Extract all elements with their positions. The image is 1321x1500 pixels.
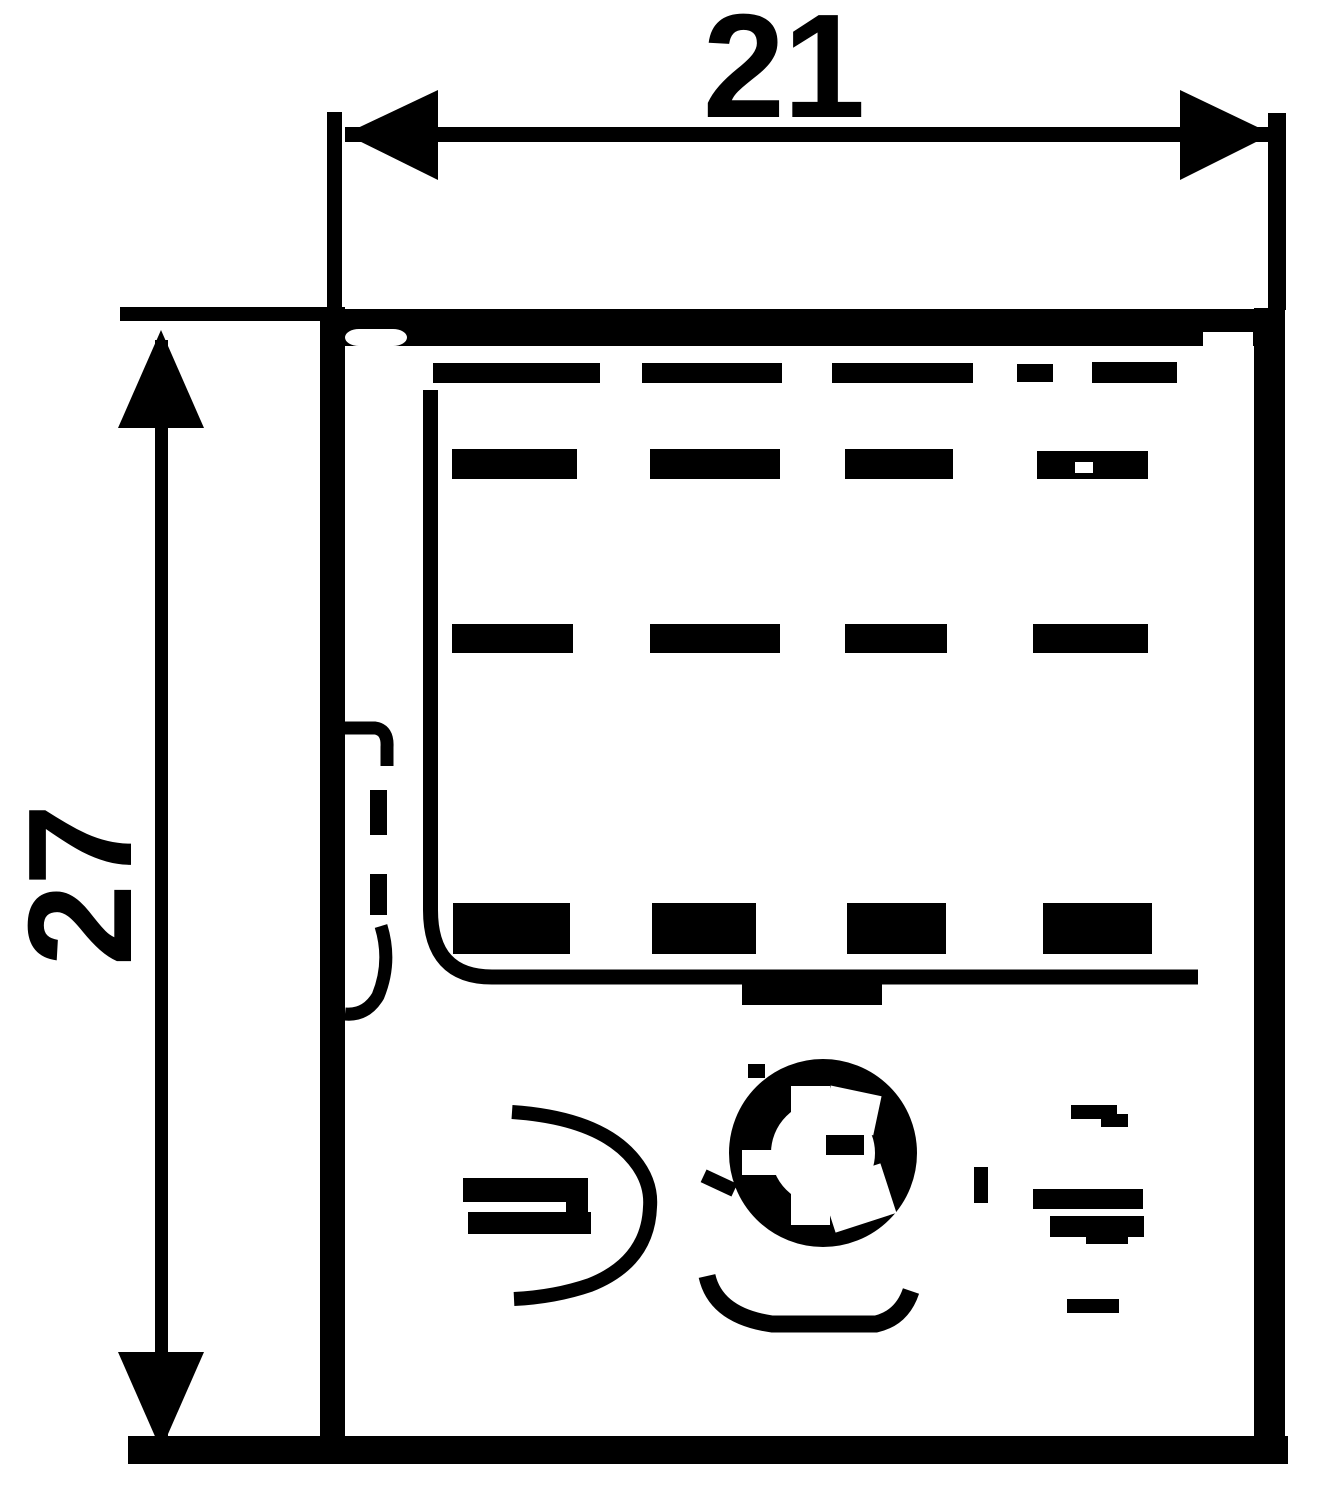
tab-dash [370, 874, 387, 915]
height-extension-line-top [120, 307, 345, 321]
dimension-width: 21 [327, 0, 1286, 312]
tab-dash [370, 790, 387, 835]
dash [845, 624, 947, 653]
housing-top-edge [320, 309, 1285, 346]
drawing-canvas: 21 27 [0, 0, 1321, 1500]
dash [650, 624, 780, 653]
tab-hook [345, 728, 387, 766]
dash [452, 624, 573, 653]
thick-dash [847, 903, 946, 954]
dash [845, 449, 953, 479]
cam-screw-detail [701, 1064, 988, 1324]
width-dimension-label: 21 [703, 0, 864, 149]
hidden-hole-dashes [1033, 1105, 1144, 1313]
height-dimension-label: 27 [0, 806, 163, 967]
tab-curve [345, 926, 386, 1014]
arrowhead-left-icon [345, 90, 438, 180]
dash [452, 449, 577, 479]
housing-left-edge [320, 308, 345, 1463]
cam-bottom-arc-hole [856, 1302, 873, 1315]
dash [650, 449, 780, 479]
hidden-edge-dashes [433, 362, 1177, 653]
top-edge-right-notch [1203, 332, 1253, 346]
width-extension-line-right [1268, 113, 1286, 310]
cam-slot-detail [463, 1112, 650, 1299]
dash [1033, 1189, 1143, 1209]
top-edge-left-notch [345, 329, 407, 346]
thick-dash [1043, 903, 1152, 954]
arrowhead-up-icon [118, 330, 204, 428]
dash [832, 363, 973, 383]
thick-dash [652, 903, 756, 954]
dash [1033, 624, 1148, 653]
arrowhead-right-icon [1180, 90, 1272, 180]
thick-dash [453, 903, 570, 954]
flange-thick-segment [742, 983, 882, 1005]
cam-bottom-arc [707, 1276, 911, 1324]
arrowhead-down-icon [118, 1352, 204, 1450]
width-extension-line-left [327, 112, 342, 312]
dash-scan-hole [1075, 462, 1093, 473]
side-tab-hidden-lines [345, 728, 387, 1014]
dash [642, 363, 782, 383]
sleeve-and-flange [431, 390, 1199, 1005]
dash [1101, 1114, 1128, 1127]
cam-fitting-technical-drawing: 21 27 [0, 0, 1321, 1500]
dash [433, 363, 600, 383]
housing-bottom-edge [128, 1436, 1288, 1464]
slot-end [566, 1178, 588, 1234]
cam-top-dot [748, 1064, 765, 1078]
cam-right-tick [974, 1167, 988, 1203]
dash [1086, 1232, 1128, 1244]
dash [1017, 364, 1053, 382]
dash [1067, 1299, 1119, 1313]
dash [1092, 362, 1177, 383]
housing-right-edge [1254, 308, 1285, 1463]
cam-inner-tick [826, 1135, 864, 1155]
dimension-height: 27 [0, 307, 345, 1450]
